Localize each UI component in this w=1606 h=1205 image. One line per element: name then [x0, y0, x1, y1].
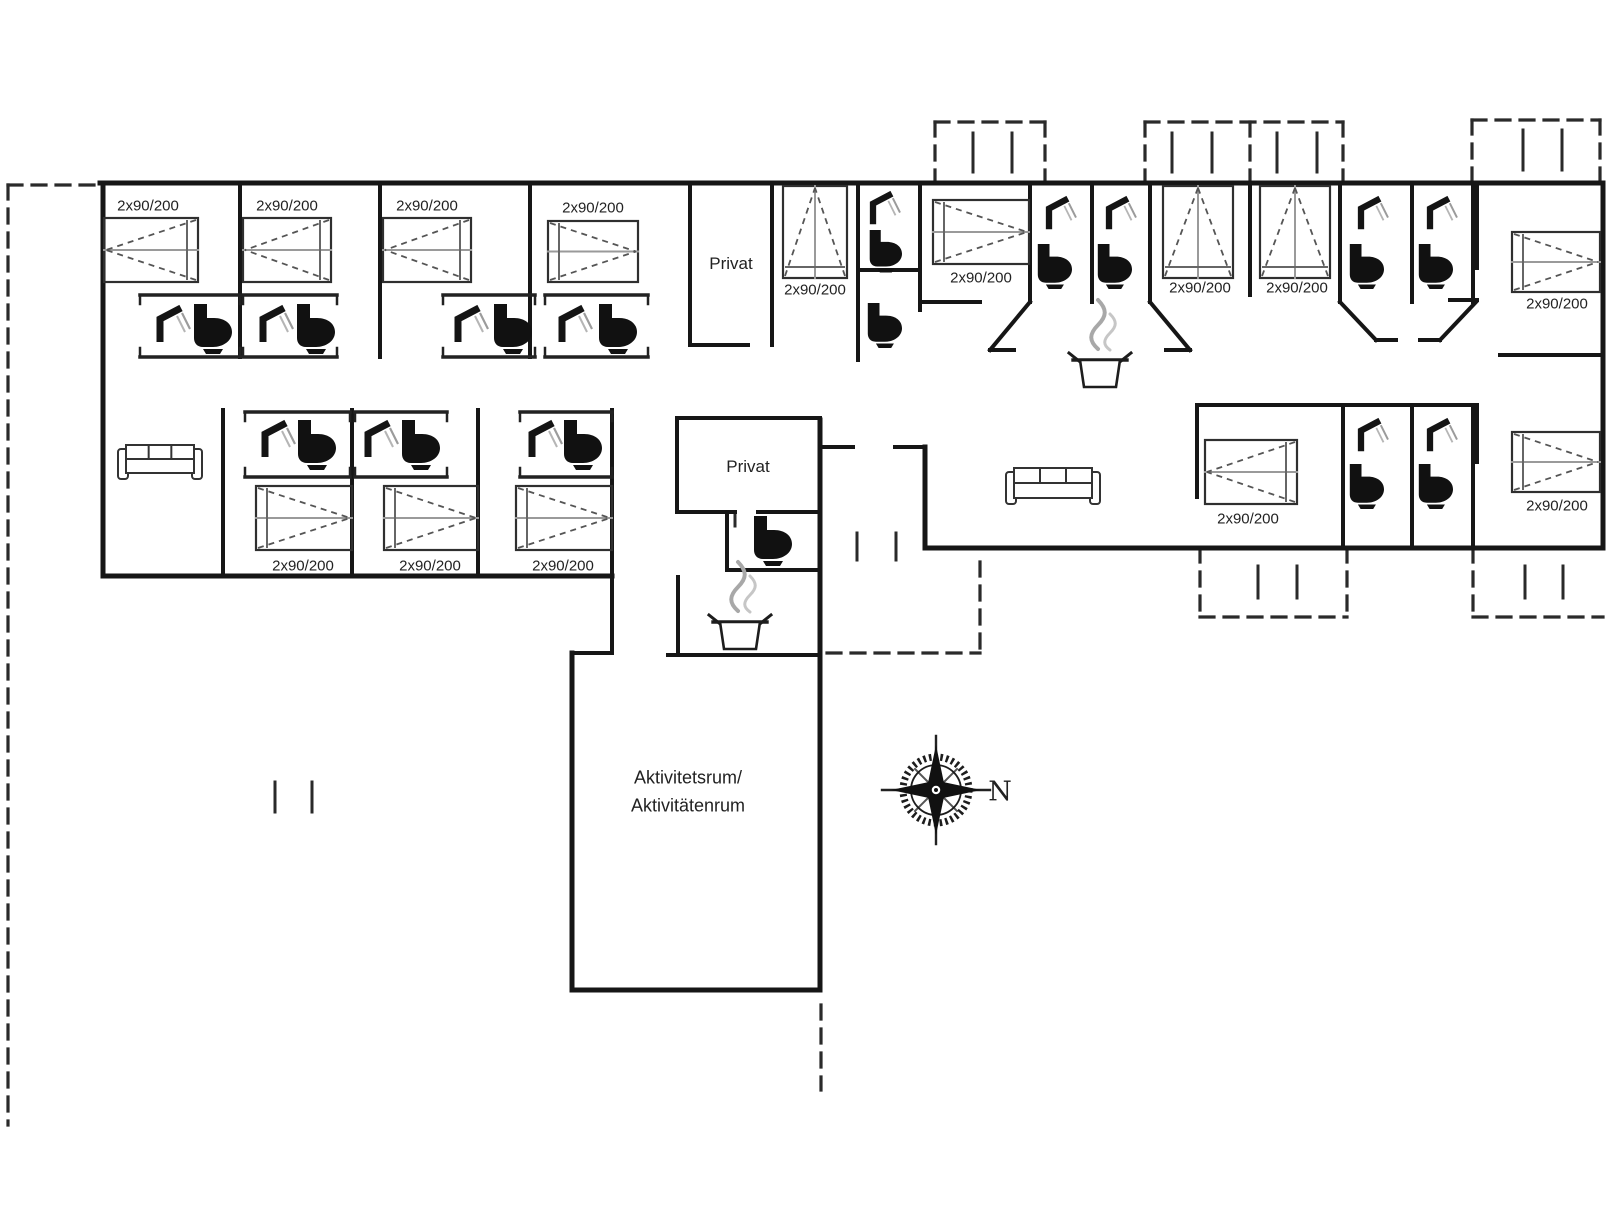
toilet-icon: [1038, 244, 1072, 289]
bed-size-11-label: 2x90/200: [399, 557, 461, 574]
shower-icon: [458, 308, 488, 342]
walls: [100, 183, 1603, 990]
activity-room-line1-label: Aktivitetsrum/: [634, 767, 742, 787]
double-bed: [384, 486, 478, 550]
bed-size-2-label: 2x90/200: [256, 197, 318, 214]
shower-icon: [1049, 199, 1076, 230]
bed-size-14-label: 2x90/200: [1526, 497, 1588, 514]
toilet-icon: [194, 304, 232, 354]
double-bed: [933, 200, 1029, 264]
toilet-icon: [298, 420, 336, 470]
toilet-icon: [564, 420, 602, 470]
shower-icon: [532, 423, 562, 457]
double-bed: [243, 218, 331, 282]
shower-icon: [873, 194, 900, 225]
bed-size-12-label: 2x90/200: [532, 557, 594, 574]
shower-icon: [368, 423, 398, 457]
bed-size-5-label: 2x90/200: [784, 281, 846, 298]
bed-size-8-label: 2x90/200: [1266, 279, 1328, 296]
activity-room-line2-label: Aktivitätenrum: [631, 795, 745, 815]
toilet-icon: [1419, 244, 1453, 289]
double-bed: [516, 486, 612, 550]
toilet-icon: [494, 304, 532, 354]
double-bed: [1163, 186, 1233, 278]
shower-icon: [263, 308, 293, 342]
shower-icon: [1430, 421, 1457, 452]
compass-n-label: N: [988, 776, 1012, 807]
shower-icon: [562, 308, 592, 342]
double-bed: [1512, 432, 1600, 492]
bed-size-10-label: 2x90/200: [272, 557, 334, 574]
double-bed: [1512, 232, 1600, 292]
double-bed: [104, 218, 198, 282]
toilet-icon: [402, 420, 440, 470]
sofa: [118, 445, 202, 479]
room-privat-1-label: Privat: [709, 254, 753, 273]
double-bed: [783, 186, 847, 278]
shower-icon: [1361, 199, 1388, 230]
bed-size-13-label: 2x90/200: [1217, 510, 1279, 527]
sofa: [1006, 468, 1100, 504]
double-bed: [383, 218, 471, 282]
double-bed: [256, 486, 352, 550]
double-bed: [1260, 186, 1330, 278]
toilet-icon: [1419, 464, 1453, 509]
floor-plan-page: 2x90/2002x90/2002x90/2002x90/2002x90/200…: [0, 0, 1606, 1205]
toilet-icon: [1098, 244, 1132, 289]
room-privat-2-label: Privat: [726, 457, 770, 476]
toilet-icon: [868, 303, 902, 348]
floor-plan: 2x90/2002x90/2002x90/2002x90/2002x90/200…: [0, 0, 1606, 1205]
compass-rose: [882, 736, 990, 844]
bed-size-7-label: 2x90/200: [1169, 279, 1231, 296]
double-bed: [1205, 440, 1297, 504]
bed-size-3-label: 2x90/200: [396, 197, 458, 214]
toilet-icon: [1350, 464, 1384, 509]
shower-icon: [1430, 199, 1457, 230]
cooking-pot-icon: [1069, 300, 1131, 387]
bed-size-9-label: 2x90/200: [1526, 295, 1588, 312]
double-bed: [548, 221, 638, 282]
toilet-icon: [1350, 244, 1384, 289]
toilet-icon: [754, 516, 792, 566]
cooking-pot-icon: [709, 562, 771, 649]
toilet-icon: [870, 230, 902, 273]
shower-icon: [1109, 199, 1136, 230]
bed-size-6-label: 2x90/200: [950, 269, 1012, 286]
toilet-icon: [297, 304, 335, 354]
toilet-icon: [599, 304, 637, 354]
shower-icon: [1361, 421, 1388, 452]
bed-size-1-label: 2x90/200: [117, 197, 179, 214]
bed-size-4-label: 2x90/200: [562, 199, 624, 216]
shower-icon: [160, 308, 190, 342]
shower-icon: [265, 423, 295, 457]
